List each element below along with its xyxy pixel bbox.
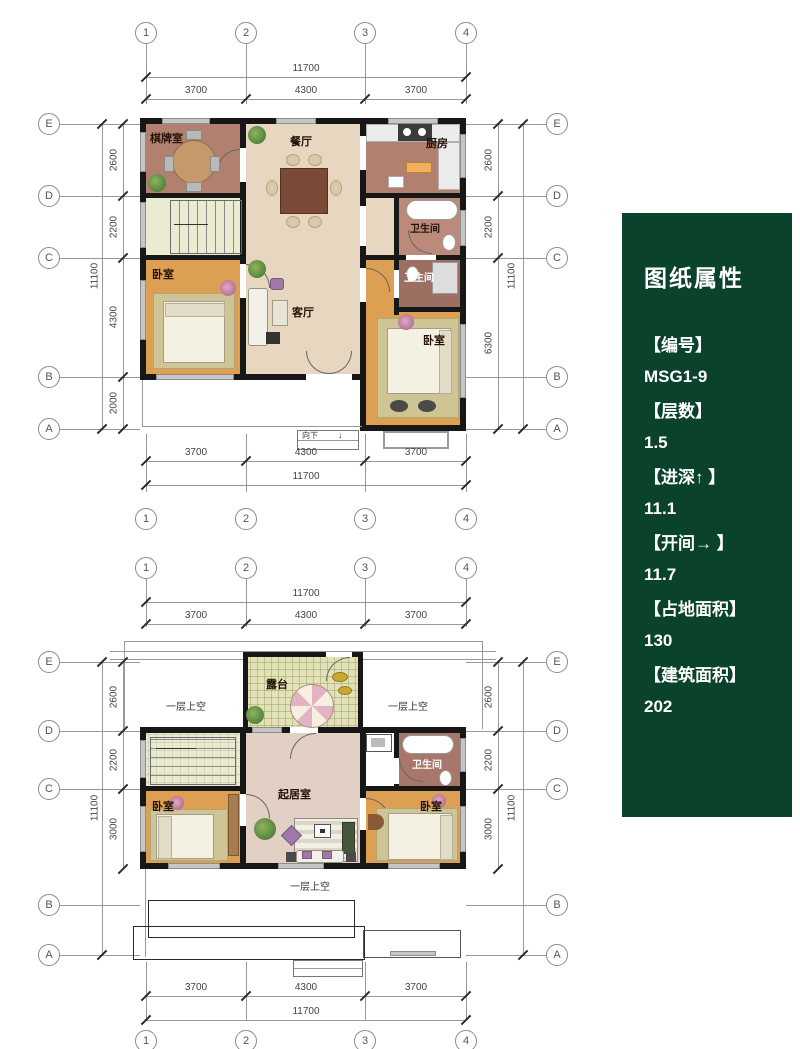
entry-note: 向下 <box>302 430 318 441</box>
grid-stem <box>365 962 366 1020</box>
grid-bubble-3: 3 <box>354 1030 376 1049</box>
coffee-table-icon <box>272 300 288 326</box>
burner-icon <box>418 128 426 136</box>
dim-text: 2600 <box>484 149 495 171</box>
grid-label: 3 <box>362 562 368 574</box>
dim-text-total-depth: 11100 <box>507 795 518 821</box>
grid-bubble-A: A <box>546 418 568 440</box>
grid-stem <box>466 377 546 378</box>
dimension-line <box>146 624 466 625</box>
dim-text: 4300 <box>295 610 317 621</box>
dimension-line <box>146 77 466 78</box>
grid-label: B <box>553 371 560 383</box>
grid-label: A <box>45 949 52 961</box>
dim-text: 3700 <box>405 447 427 458</box>
grid-label: 1 <box>143 513 149 525</box>
balcony-railing <box>133 926 365 960</box>
grid-bubble-A: A <box>38 418 60 440</box>
door-gap <box>406 255 436 260</box>
speaker-icon <box>286 852 296 862</box>
dining-table-icon <box>280 168 328 214</box>
window <box>276 118 316 124</box>
grid-label: E <box>553 118 560 130</box>
window <box>156 374 234 380</box>
grid-label: 2 <box>243 1035 249 1047</box>
field-value: MSG1-9 <box>644 360 792 393</box>
dimension-line <box>146 996 466 997</box>
wall <box>140 786 246 791</box>
grid-label: 2 <box>243 513 249 525</box>
stair-arrow <box>156 748 196 749</box>
room-label-bed-right: 卧室 <box>420 798 442 814</box>
field-label: 【层数】 <box>644 393 792 426</box>
wardrobe-icon <box>228 794 239 856</box>
room-label-terrace: 露台 <box>266 676 288 692</box>
grid-label: 1 <box>143 27 149 39</box>
grid-bubble-2: 2 <box>235 1030 257 1049</box>
room-label-bed-left: 卧室 <box>152 798 174 814</box>
sink-basin-icon <box>371 738 385 747</box>
floor-plan-1: 向下 ↓ 棋牌室 餐厅 厨房 卫生间 卧室 客厅 卫生间 卧室 <box>140 118 466 431</box>
chair-icon <box>368 814 384 830</box>
dim-text: 4300 <box>295 447 317 458</box>
grid-label: E <box>553 656 560 668</box>
cutting-board-icon <box>406 162 432 173</box>
grid-bubble-C: C <box>38 247 60 269</box>
chair-icon <box>308 216 322 228</box>
grid-label: 3 <box>362 513 368 525</box>
lounge-chair-icon <box>338 686 352 695</box>
room-label-family: 起居室 <box>278 786 311 802</box>
sink-icon <box>388 176 404 188</box>
door-gap <box>240 148 246 182</box>
field-label: 【进深↑ 】 <box>644 459 792 492</box>
grid-bubble-D: D <box>546 185 568 207</box>
grid-label: 3 <box>362 27 368 39</box>
field-value: 11.7 <box>644 558 792 591</box>
wall <box>360 786 466 791</box>
grid-label: B <box>45 899 52 911</box>
field-label: 【编号】 <box>644 327 792 360</box>
grid-bubble-1: 1 <box>135 1030 157 1049</box>
plant-icon <box>254 818 276 840</box>
field-label: 【占地面积】 <box>644 591 792 624</box>
window <box>140 806 146 852</box>
wall <box>358 652 363 733</box>
stairs-icon <box>150 737 236 785</box>
grid-stem <box>246 962 247 1020</box>
window <box>460 210 466 246</box>
plant-icon <box>148 174 166 192</box>
porch-outline <box>142 426 362 427</box>
grid-bubble-3: 3 <box>354 22 376 44</box>
dim-text: 2200 <box>109 216 120 238</box>
pillow-icon <box>322 851 332 859</box>
porch-outline <box>142 380 143 427</box>
grid-bubble-4: 4 <box>455 508 477 530</box>
grid-bubble-E: E <box>38 651 60 673</box>
room-label-void-bottom: 一层上空 <box>290 878 330 893</box>
plant-icon <box>246 706 264 724</box>
grid-bubble-2: 2 <box>235 22 257 44</box>
stairs-icon <box>170 200 242 254</box>
dim-text: 2200 <box>109 749 120 771</box>
grid-label: 4 <box>463 562 469 574</box>
dim-text: 3700 <box>405 982 427 993</box>
grid-label: 3 <box>362 1035 368 1047</box>
stair-arrow <box>174 224 208 225</box>
window <box>390 951 436 956</box>
grid-label: C <box>553 252 561 264</box>
pillow-icon <box>302 851 312 859</box>
flower-icon <box>398 314 414 330</box>
grid-stem <box>60 258 140 259</box>
wall <box>394 307 466 312</box>
grid-stem <box>466 196 546 197</box>
grid-stem <box>466 905 546 906</box>
grid-stem <box>146 962 147 1020</box>
grid-label: D <box>553 190 561 202</box>
grid-bubble-4: 4 <box>455 1030 477 1049</box>
grid-bubble-4: 4 <box>455 22 477 44</box>
chair-icon <box>286 216 300 228</box>
dim-text-total-width: 11700 <box>292 588 319 599</box>
window <box>140 280 146 340</box>
dim-text: 2600 <box>109 149 120 171</box>
dim-text-total-width: 11700 <box>292 1006 319 1017</box>
grid-label: B <box>553 899 560 911</box>
pillow-icon <box>158 816 172 859</box>
dim-text: 4300 <box>295 982 317 993</box>
grid-label: 4 <box>463 27 469 39</box>
bathtub-icon <box>406 200 458 220</box>
dim-text: 2200 <box>484 216 495 238</box>
dim-text: 3700 <box>405 610 427 621</box>
grid-bubble-D: D <box>546 720 568 742</box>
entry-steps-line <box>294 968 362 969</box>
room-label-void-left: 一层上空 <box>166 698 206 713</box>
grid-label: A <box>45 423 52 435</box>
dim-text: 2600 <box>109 686 120 708</box>
cabinet-icon <box>342 822 355 854</box>
chair-icon <box>266 180 278 196</box>
field-value: 11.1 <box>644 492 792 525</box>
dim-text: 3700 <box>185 982 207 993</box>
dim-text: 3000 <box>484 818 495 840</box>
grid-bubble-1: 1 <box>135 22 157 44</box>
drawing-sheet: 1 2 3 4 11700 3700 4300 3700 E D C B A 1… <box>0 0 800 1049</box>
field-value: 130 <box>644 624 792 657</box>
grid-bubble-D: D <box>38 185 60 207</box>
window <box>278 863 324 869</box>
grid-stem <box>466 124 546 125</box>
burner-icon <box>403 128 411 136</box>
room-label-dining: 餐厅 <box>290 133 312 149</box>
window <box>140 132 146 172</box>
grid-stem <box>466 955 546 956</box>
grid-label: E <box>45 656 52 668</box>
speaker-icon <box>346 852 356 862</box>
grid-bubble-C: C <box>546 778 568 800</box>
dimension-line <box>123 124 124 429</box>
grid-bubble-1: 1 <box>135 557 157 579</box>
dimension-line <box>146 461 466 462</box>
grid-stem <box>60 905 140 906</box>
plant-icon <box>248 260 266 278</box>
grid-label: A <box>553 949 560 961</box>
dimension-line <box>146 1020 466 1021</box>
grid-bubble-D: D <box>38 720 60 742</box>
dim-text-total-width: 11700 <box>292 63 319 74</box>
chair-icon <box>308 154 322 166</box>
grid-bubble-E: E <box>38 113 60 135</box>
down-arrow-icon: ↓ <box>338 430 343 440</box>
grid-bubble-B: B <box>546 366 568 388</box>
grid-stem <box>60 731 140 732</box>
room-label-bed-right: 卧室 <box>423 332 445 348</box>
door-gap <box>360 206 366 246</box>
dimension-line <box>102 662 103 955</box>
dim-text: 2600 <box>484 686 495 708</box>
door-gap <box>306 374 352 380</box>
room-label-kitchen: 厨房 <box>426 135 448 151</box>
window <box>460 324 466 398</box>
grid-label: 1 <box>143 562 149 574</box>
dim-text: 4300 <box>295 85 317 96</box>
dimension-line <box>523 662 524 955</box>
dim-text: 3700 <box>185 85 207 96</box>
dimension-line <box>146 602 466 603</box>
grid-bubble-E: E <box>546 651 568 673</box>
door-gap <box>394 270 399 298</box>
dimension-line <box>146 485 466 486</box>
grid-label: C <box>553 783 561 795</box>
grid-label: E <box>45 118 52 130</box>
window <box>460 806 466 852</box>
chair-icon <box>210 156 220 172</box>
panel-title: 图纸属性 <box>644 259 792 293</box>
grid-label: 1 <box>143 1035 149 1047</box>
grid-bubble-3: 3 <box>354 508 376 530</box>
chair-icon <box>418 400 436 412</box>
vanity-icon <box>432 262 458 294</box>
grid-bubble-A: A <box>38 944 60 966</box>
tv-icon <box>266 332 280 344</box>
chair-icon <box>186 130 202 140</box>
window <box>140 202 146 248</box>
chair-icon <box>390 400 408 412</box>
dimension-line <box>102 124 103 429</box>
dim-text: 2000 <box>109 392 120 414</box>
grid-label: B <box>45 371 52 383</box>
room-label-bath: 卫生间 <box>412 756 442 771</box>
dim-text: 4300 <box>109 306 120 328</box>
toilet-icon <box>442 234 456 251</box>
dim-text: 2200 <box>484 749 495 771</box>
grid-label: A <box>553 423 560 435</box>
dim-text: 3700 <box>185 610 207 621</box>
grid-label: 4 <box>463 1035 469 1047</box>
grid-bubble-2: 2 <box>235 557 257 579</box>
dim-text: 3000 <box>109 818 120 840</box>
grid-stem <box>246 434 247 492</box>
window <box>460 738 466 772</box>
chair-icon <box>186 182 202 192</box>
room-label-chess: 棋牌室 <box>150 130 183 146</box>
grid-label: C <box>45 252 53 264</box>
window <box>388 863 440 869</box>
grid-stem <box>466 258 546 259</box>
floor-plan-2: 露台 一层上空 一层上空 卫生间 起居室 卧室 卧室 一层上空 <box>140 648 466 978</box>
grid-bubble-2: 2 <box>235 508 257 530</box>
grid-label: 2 <box>243 562 249 574</box>
grid-bubble-B: B <box>38 366 60 388</box>
sofa-icon <box>248 288 268 346</box>
wall <box>140 255 246 260</box>
window <box>252 727 282 733</box>
grid-stem <box>365 434 366 492</box>
grid-bubble-1: 1 <box>135 508 157 530</box>
grid-label: C <box>45 783 53 795</box>
wall <box>360 193 466 198</box>
grid-bubble-C: C <box>546 247 568 269</box>
grid-label: D <box>553 725 561 737</box>
grid-label: D <box>45 190 53 202</box>
plant-icon <box>248 126 266 144</box>
room-label-bath-mid: 卫生间 <box>404 269 434 284</box>
chair-icon <box>286 154 300 166</box>
dim-text: 6300 <box>484 332 495 354</box>
umbrella-icon <box>290 684 334 728</box>
pillow-icon <box>165 303 225 317</box>
lounge-chair-icon <box>332 672 348 682</box>
dimension-line <box>498 662 499 869</box>
flower-icon <box>220 280 236 296</box>
grid-label: D <box>45 725 53 737</box>
grid-bubble-E: E <box>546 113 568 135</box>
grid-bubble-C: C <box>38 778 60 800</box>
grid-stem <box>60 789 140 790</box>
field-value: 1.5 <box>644 426 792 459</box>
grid-stem <box>60 377 140 378</box>
bathtub-icon <box>402 735 454 754</box>
grid-stem <box>466 731 546 732</box>
dim-text-total-depth: 11100 <box>507 263 518 289</box>
field-label: 【建筑面积】 <box>644 657 792 690</box>
grid-stem <box>466 662 546 663</box>
dim-text-total-width: 11700 <box>292 471 319 482</box>
dimension-line <box>146 99 466 100</box>
dimension-line <box>498 124 499 429</box>
grid-bubble-B: B <box>546 894 568 916</box>
property-panel: 图纸属性 【编号】 MSG1-9 【层数】 1.5 【进深↑ 】 11.1 【开… <box>622 213 792 817</box>
room-label-living: 客厅 <box>292 304 314 320</box>
toilet-icon <box>439 770 452 786</box>
wall <box>140 193 246 198</box>
room-label-void-right: 一层上空 <box>388 698 428 713</box>
chair-icon <box>330 180 342 196</box>
dimension-line <box>123 662 124 869</box>
dim-text: 3700 <box>405 85 427 96</box>
grid-bubble-B: B <box>38 894 60 916</box>
dimension-line <box>523 124 524 429</box>
grid-label: 4 <box>463 513 469 525</box>
grid-bubble-3: 3 <box>354 557 376 579</box>
panel-fields: 【编号】 MSG1-9 【层数】 1.5 【进深↑ 】 11.1 【开间→ 】 … <box>644 327 792 723</box>
dim-text-total-depth: 11100 <box>90 795 101 821</box>
grid-stem <box>466 429 546 430</box>
pillow-icon <box>440 815 453 860</box>
porch <box>146 380 360 426</box>
grid-stem <box>60 196 140 197</box>
room-label-bath-top: 卫生间 <box>410 220 440 235</box>
grid-stem <box>466 789 546 790</box>
grid-bubble-A: A <box>546 944 568 966</box>
field-value: 202 <box>644 690 792 723</box>
room-label-bed-left: 卧室 <box>152 266 174 282</box>
dim-text-total-depth: 11100 <box>90 263 101 289</box>
window <box>162 118 210 124</box>
window <box>168 863 220 869</box>
grid-stem <box>466 962 467 1020</box>
dim-text: 3700 <box>185 447 207 458</box>
door-gap <box>394 758 399 784</box>
window <box>460 134 466 178</box>
window <box>140 740 146 778</box>
tv-dot-icon <box>320 829 325 833</box>
field-label: 【开间→ 】 <box>644 525 792 558</box>
grid-bubble-4: 4 <box>455 557 477 579</box>
chair-icon <box>164 156 174 172</box>
grid-label: 2 <box>243 27 249 39</box>
roof-outline <box>124 641 125 729</box>
armchair-icon <box>270 278 284 290</box>
roof-outline <box>124 641 482 642</box>
